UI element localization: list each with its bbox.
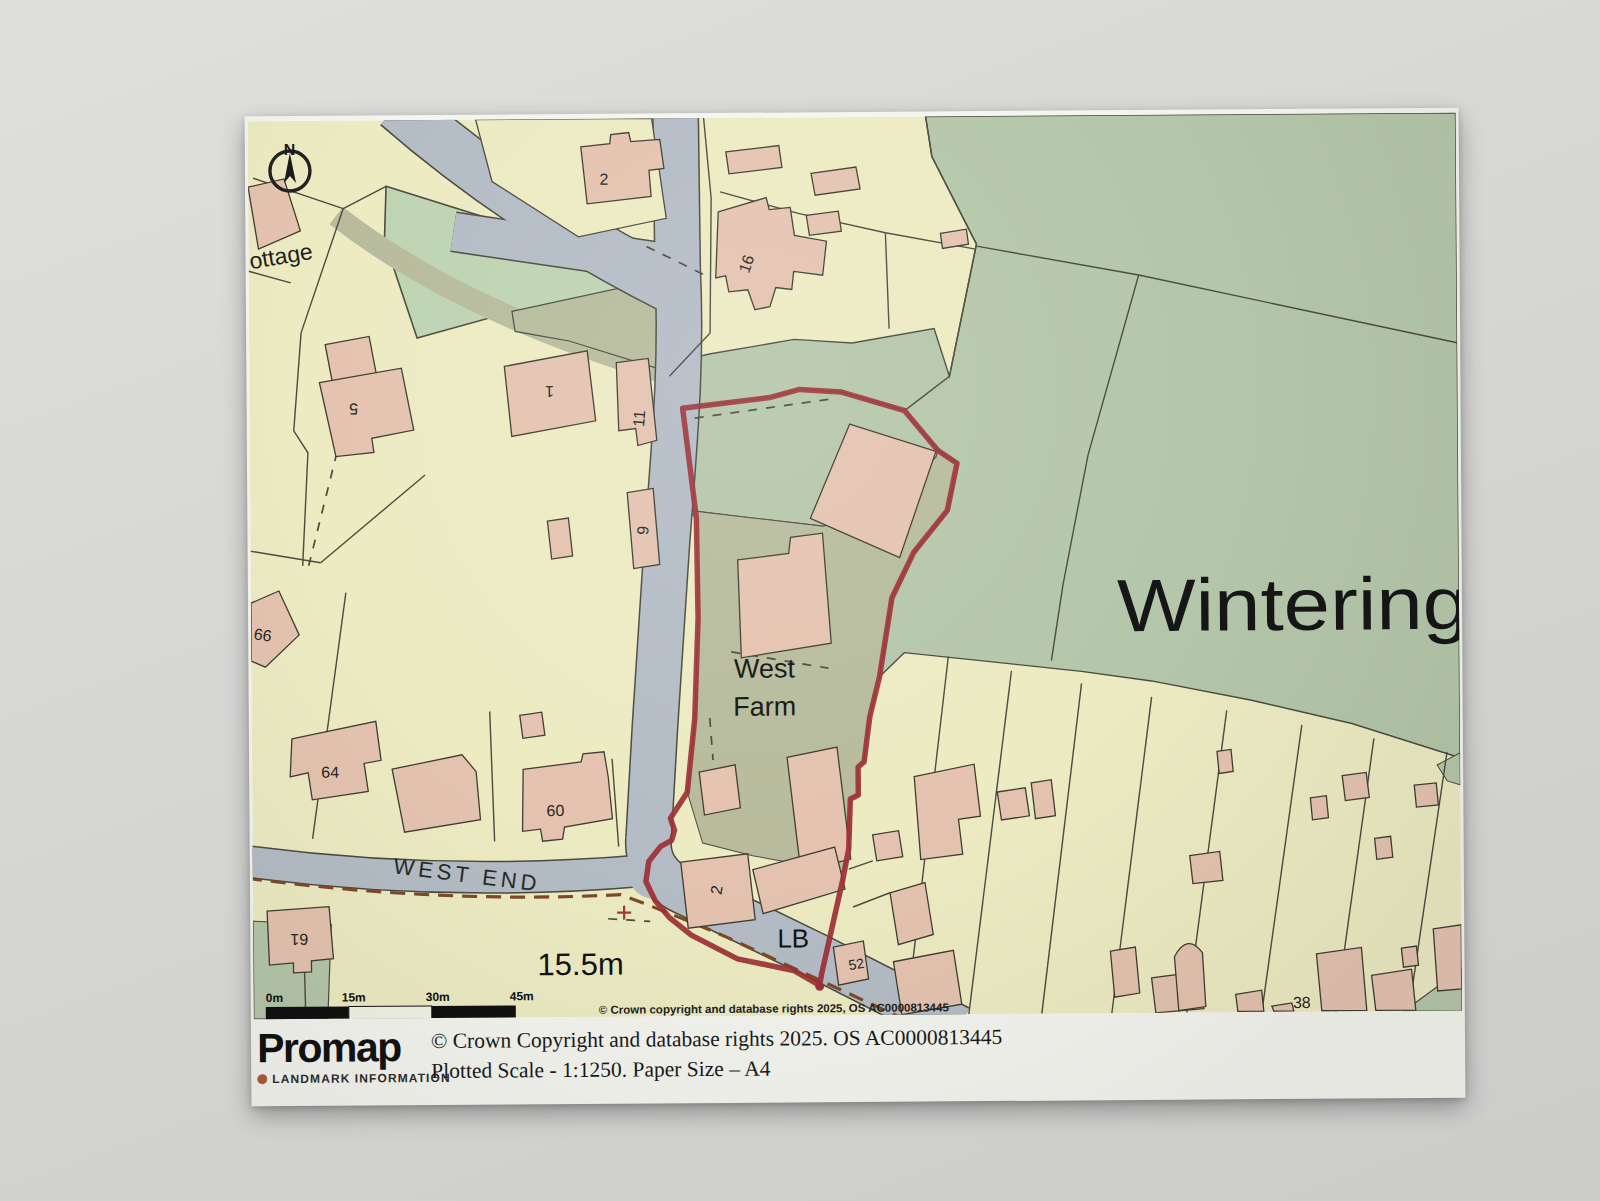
- landmark-subtitle: LANDMARK INFORMATION: [257, 1071, 425, 1086]
- footer-scale-line: Plotted Scale - 1:1250. Paper Size – A4: [431, 1053, 1002, 1087]
- landmark-dot-icon: [257, 1074, 267, 1084]
- building: [1110, 947, 1139, 997]
- photo-of-map: N 2 16 5 1 11 9 66 64 60 61 2 52 38 otta…: [0, 0, 1600, 1201]
- site-name-line1: West: [734, 653, 796, 683]
- plot-label: 64: [321, 764, 339, 781]
- plot-label: 38: [1293, 994, 1311, 1011]
- plot-label: 66: [253, 625, 273, 644]
- site-name-line2: Farm: [733, 691, 796, 721]
- plot-label: 5: [349, 400, 358, 417]
- building: [997, 788, 1029, 820]
- building: [392, 755, 481, 833]
- building: [1217, 749, 1233, 773]
- area-name-label: Wintering: [1117, 562, 1462, 647]
- plot-label: 60: [546, 802, 564, 819]
- building: [1401, 946, 1418, 967]
- plot-label: 11: [630, 409, 648, 427]
- boundary-corner-dot: [815, 982, 824, 991]
- building: [699, 765, 740, 815]
- building: [1174, 943, 1205, 1010]
- building: [1372, 969, 1416, 1010]
- map-sheet: N 2 16 5 1 11 9 66 64 60 61 2 52 38 otta…: [245, 108, 1466, 1106]
- building: [1433, 925, 1461, 991]
- plot-label: 9: [634, 525, 652, 535]
- plot-label: 1: [545, 383, 554, 400]
- map-copyright: © Crown copyright and database rights 20…: [599, 1001, 950, 1015]
- building: [806, 211, 841, 235]
- footer-copyright-line: © Crown Copyright and database rights 20…: [431, 1023, 1002, 1057]
- plot-label: 52: [847, 955, 865, 974]
- building: [520, 712, 545, 738]
- spot-height-label: 15.5m: [537, 947, 623, 983]
- building: [1414, 783, 1438, 807]
- footer-text-block: © Crown Copyright and database rights 20…: [431, 1023, 1003, 1086]
- promap-logo: Promap: [257, 1027, 425, 1069]
- landmark-text: LANDMARK INFORMATION: [272, 1071, 451, 1086]
- building: [940, 229, 968, 248]
- north-arrow-label: N: [284, 141, 296, 158]
- letter-box-label: LB: [777, 923, 809, 953]
- plot-label: 2: [599, 171, 608, 188]
- building-38: [1316, 947, 1366, 1010]
- building: [1031, 780, 1055, 819]
- building: [1310, 796, 1328, 820]
- building: [873, 831, 903, 861]
- building: [547, 518, 572, 559]
- building: [1342, 772, 1369, 800]
- sheet-footer: Promap LANDMARK INFORMATION © Crown Copy…: [251, 1014, 1466, 1104]
- scale-tick: 0m: [266, 991, 283, 1005]
- promap-logo-block: Promap LANDMARK INFORMATION: [257, 1027, 425, 1086]
- building: [1375, 836, 1393, 859]
- building: [1190, 851, 1223, 883]
- map-canvas: N 2 16 5 1 11 9 66 64 60 61 2 52 38 otta…: [248, 113, 1462, 1019]
- building: [890, 882, 933, 944]
- plot-label: 61: [290, 931, 308, 948]
- scale-tick: 15m: [342, 990, 366, 1004]
- scale-tick: 45m: [510, 989, 534, 1003]
- scale-tick: 30m: [426, 990, 450, 1004]
- building: [1236, 990, 1264, 1011]
